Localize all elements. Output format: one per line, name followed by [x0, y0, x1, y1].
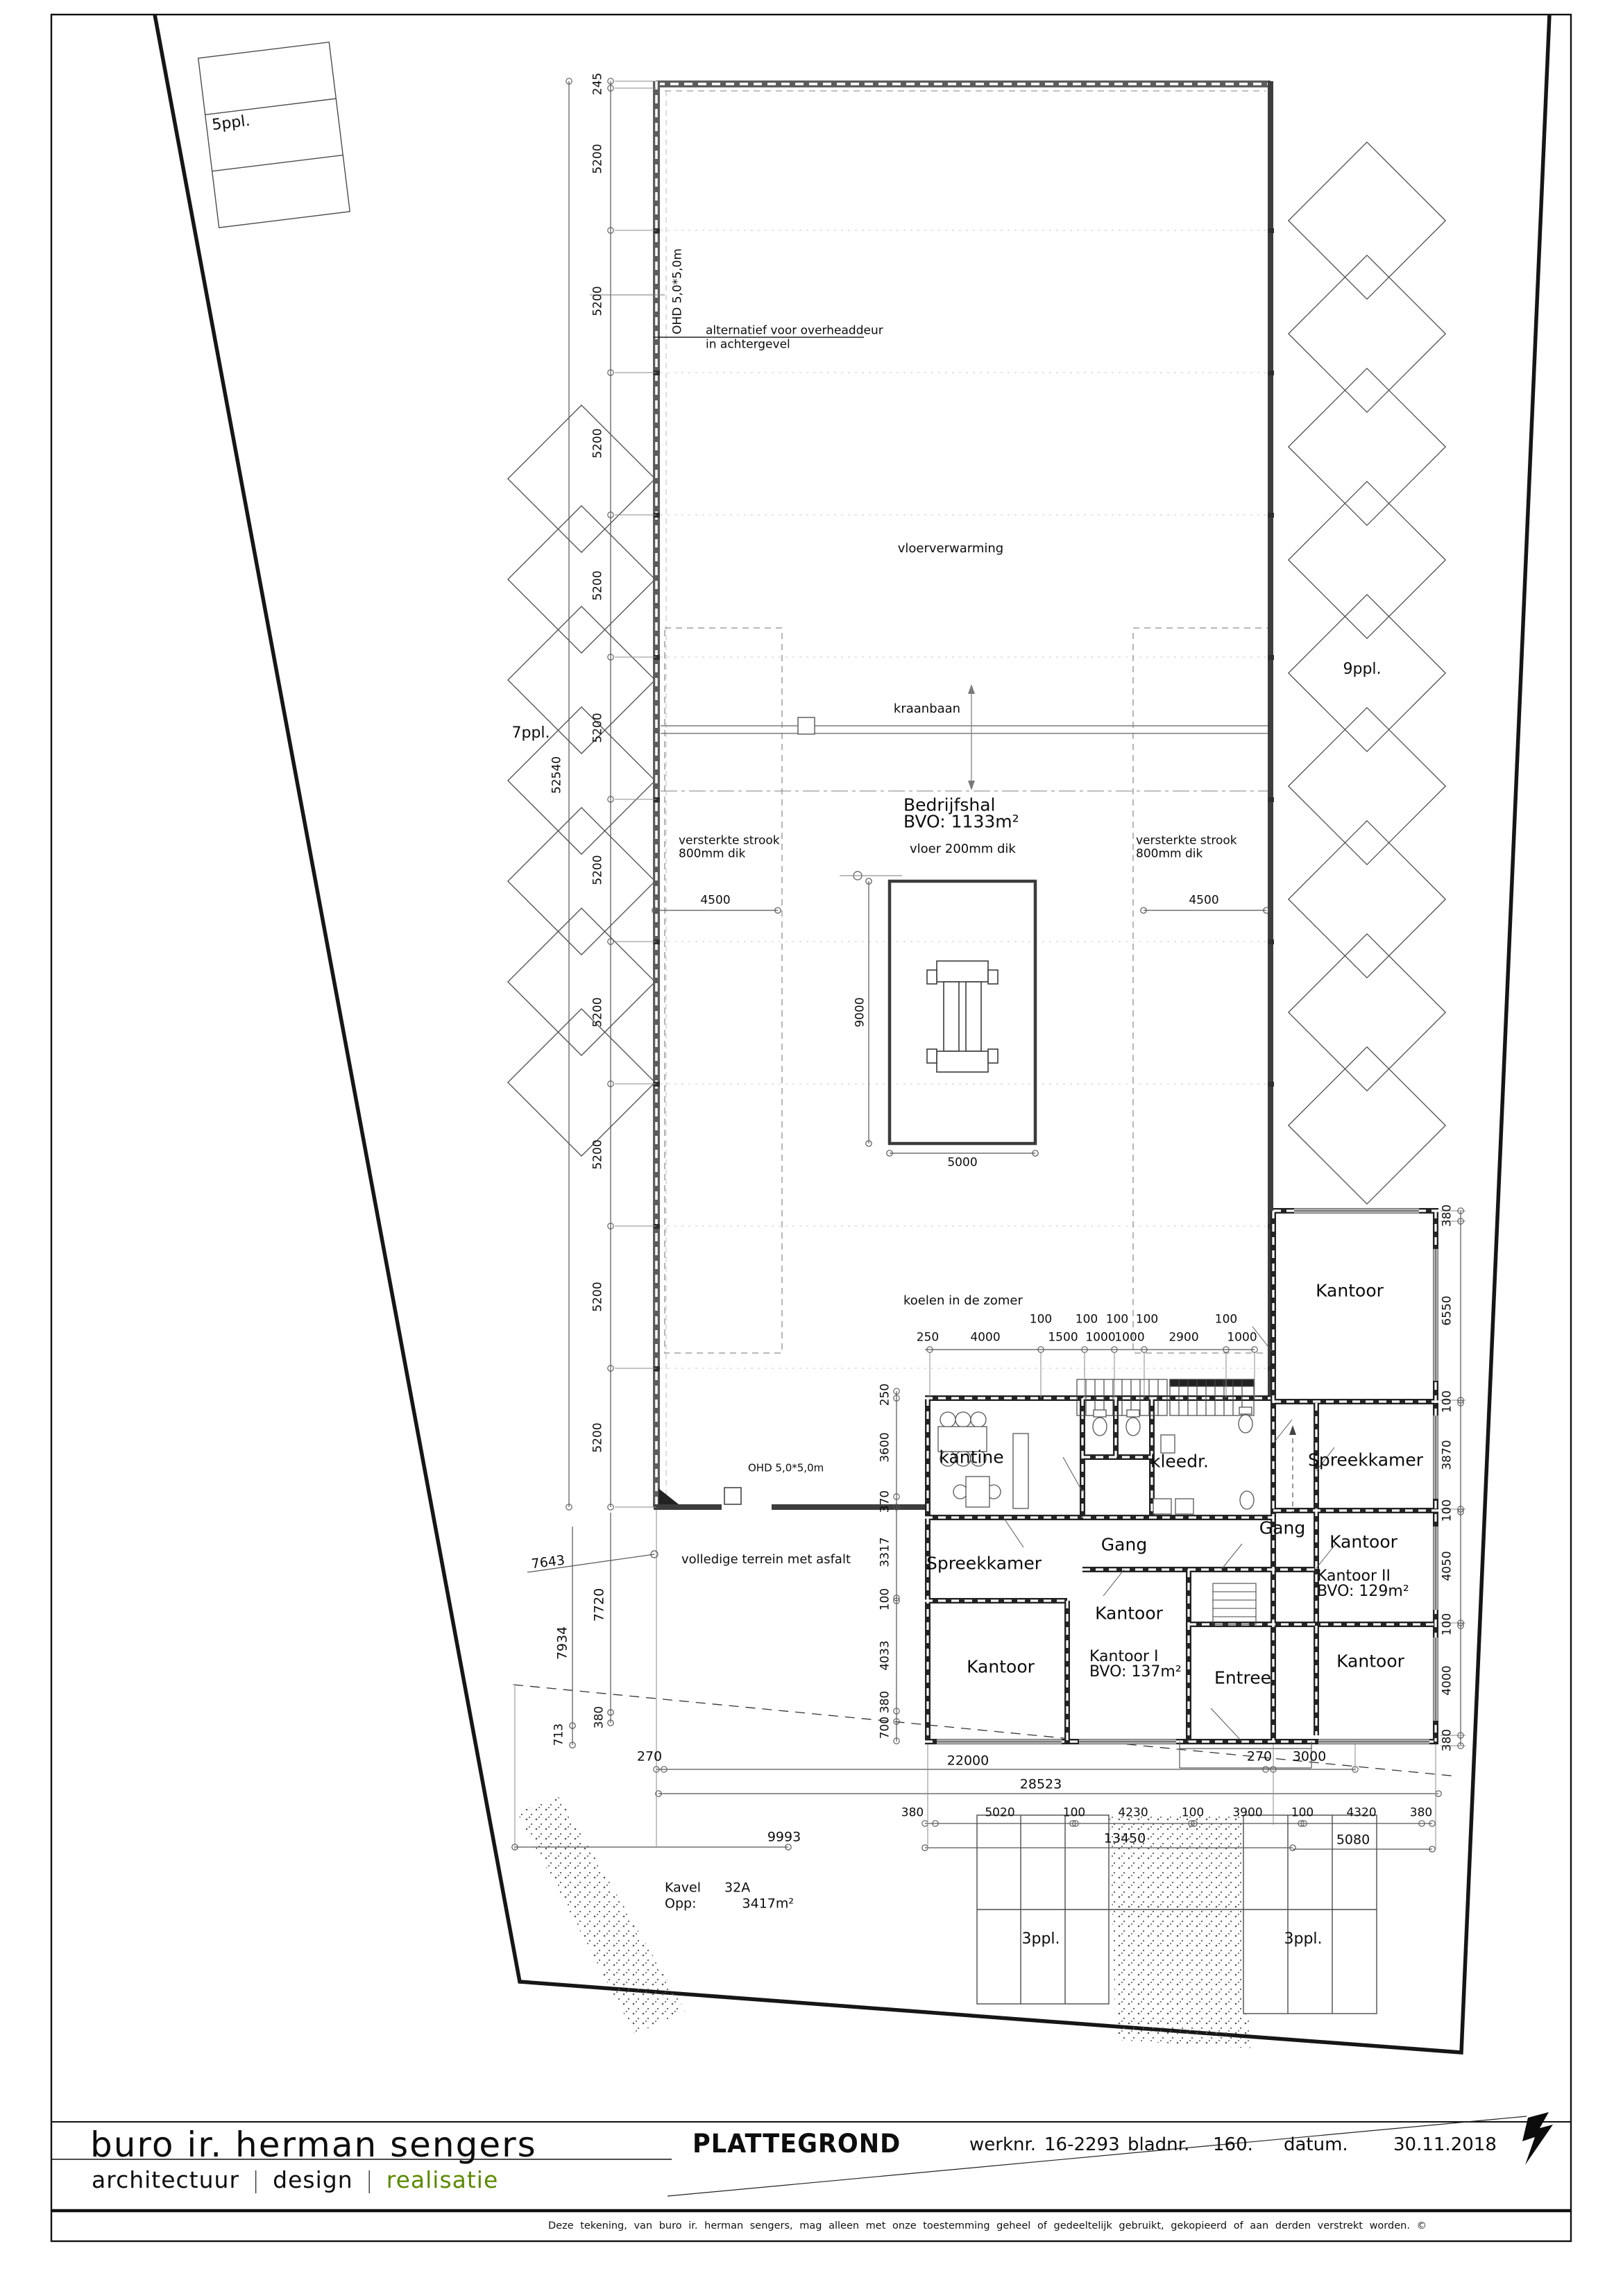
- dim-left-bay-1: 5200: [593, 144, 604, 173]
- dim-left-total: 52540: [552, 756, 563, 794]
- dim-chain-4: 100: [1182, 1808, 1204, 1819]
- dim-ol-0: 250: [880, 1384, 892, 1406]
- dim-chain-2: 100: [1063, 1808, 1085, 1819]
- dim-top-4000: 4000: [970, 1332, 1000, 1344]
- dim-ol-7: 700: [880, 1717, 892, 1739]
- dim-9993: 9993: [767, 1831, 801, 1844]
- dim-right-0: 380: [1442, 1205, 1454, 1227]
- dim-left-bay-3: 5200: [593, 428, 604, 458]
- dim-713: 713: [554, 1724, 566, 1746]
- room-label-kantoor-topright: Kantoor: [1316, 1282, 1384, 1300]
- dim-left-bay-2: 5200: [593, 286, 604, 316]
- parking-label-7ppl: 7ppl.: [511, 726, 550, 741]
- vloerverwarming-label: vloerverwarming: [898, 543, 1003, 555]
- dim-top-1000-c: 1000: [1227, 1332, 1257, 1344]
- parking-left-7ppl: [508, 405, 655, 1156]
- dim-right-8: 380: [1442, 1729, 1454, 1751]
- dim-5080: 5080: [1336, 1834, 1370, 1847]
- kavel-line1: Kavel 32A: [665, 1882, 750, 1895]
- room-label-kantoor-center: Kantoor: [1095, 1605, 1163, 1622]
- dim-3000: 3000: [1293, 1751, 1326, 1764]
- dim-22000: 22000: [947, 1755, 989, 1768]
- tagline-architectuur: architectuur: [92, 2166, 239, 2193]
- kraanbaan-label: kraanbaan: [894, 703, 960, 715]
- copyright-disclaimer: Deze tekening, van buro ir. herman senge…: [548, 2220, 1427, 2231]
- dim-left-bay-6: 5200: [593, 855, 604, 885]
- dim-ol-6: 380: [880, 1691, 892, 1713]
- kantoor1-area: BVO: 137m²: [1089, 1665, 1182, 1680]
- alternatief-line2: in achtergevel: [706, 339, 790, 351]
- dim-right-2: 100: [1442, 1391, 1454, 1413]
- ohd-door-label: OHD 5,0*5,0m: [748, 1463, 824, 1474]
- room-label-kantoor-lowright: Kantoor: [1336, 1653, 1404, 1670]
- kantoor2-area: BVO: 129m²: [1317, 1584, 1409, 1599]
- dim-5000: 5000: [947, 1157, 977, 1169]
- kantoor1-name: Kantoor I: [1089, 1649, 1159, 1665]
- room-label-gang-right: Gang: [1259, 1520, 1305, 1537]
- room-label-kleedr: kleedr.: [1150, 1453, 1209, 1470]
- tagline-realisatie: realisatie: [386, 2166, 499, 2193]
- parking-label-9ppl: 9ppl.: [1343, 662, 1381, 677]
- datum-value: 30.11.2018: [1393, 2134, 1497, 2155]
- dim-right-4: 100: [1442, 1499, 1454, 1522]
- dim-9000: 9000: [855, 997, 867, 1027]
- room-label-kantine: kantine: [939, 1449, 1003, 1466]
- opp-value: 3417m²: [742, 1896, 794, 1912]
- dim-top-100-d: 100: [1136, 1314, 1158, 1326]
- dim-top-1500: 1500: [1048, 1332, 1078, 1344]
- bedrijfshal-area: BVO: 1133m²: [903, 813, 1019, 831]
- dim-chain-6: 100: [1291, 1808, 1314, 1819]
- asfalt-label: volledige terrein met asfalt: [681, 1554, 851, 1566]
- dim-left-bay-5: 5200: [593, 713, 604, 742]
- dim-right-5: 4050: [1442, 1551, 1454, 1581]
- dim-right-6: 100: [1442, 1613, 1454, 1635]
- dim-4500-right: 4500: [1189, 895, 1218, 907]
- dim-left-bay-10: 5200: [593, 1422, 604, 1452]
- dim-right-7: 4000: [1442, 1665, 1454, 1695]
- bladnr-label: bladnr.: [1128, 2134, 1189, 2155]
- dim-ol-3: 3317: [880, 1537, 892, 1567]
- dim-right-3: 3870: [1442, 1440, 1454, 1470]
- parking-label-3ppl-a: 3ppl.: [1021, 1932, 1060, 1947]
- werknr-label: werknr.: [969, 2134, 1036, 2155]
- dim-13450: 13450: [1104, 1832, 1146, 1846]
- tagline-separator-2: |: [366, 2166, 374, 2193]
- dim-chain-7: 4320: [1346, 1808, 1376, 1819]
- tagline-design: design: [273, 2166, 352, 2193]
- room-label-gang: Gang: [1101, 1536, 1147, 1554]
- dim-ol-1: 3600: [880, 1432, 892, 1462]
- company-tagline: architectuur | design | realisatie: [92, 2166, 498, 2193]
- plan-linework: [0, 0, 1623, 2296]
- room-label-kantoor-midright: Kantoor: [1329, 1533, 1397, 1551]
- room-label-spreekkamer-right: Spreekkamer: [1308, 1452, 1423, 1469]
- versterkte-strook-left-1: versterkte strook: [679, 835, 780, 847]
- dim-7934: 7934: [556, 1626, 570, 1660]
- opp-label: Opp:: [665, 1896, 696, 1912]
- dim-ol-5: 4033: [880, 1640, 892, 1670]
- parking-label-3ppl-b: 3ppl.: [1284, 1932, 1322, 1947]
- dim-top-100-a: 100: [1030, 1314, 1052, 1326]
- werknr-value: 16-2293: [1044, 2134, 1120, 2155]
- dim-top-250: 250: [917, 1332, 939, 1344]
- dim-chain-1: 5020: [985, 1808, 1014, 1819]
- company-name: buro ir. herman sengers: [90, 2125, 537, 2165]
- dim-chain-8: 380: [1410, 1808, 1432, 1819]
- dim-28523: 28523: [1020, 1778, 1062, 1792]
- dim-top-100-c: 100: [1106, 1314, 1128, 1326]
- kraanbaan-rails: [661, 684, 1268, 790]
- datum-label: datum.: [1284, 2134, 1348, 2155]
- dim-4500-left: 4500: [700, 895, 730, 907]
- versterkte-strook-left-2: 800mm dik: [679, 849, 745, 860]
- dim-380-site: 380: [594, 1706, 606, 1728]
- dim-270-a: 270: [637, 1751, 662, 1764]
- versterkte-strook-right-1: versterkte strook: [1136, 835, 1237, 847]
- dim-left-245: 245: [593, 73, 604, 95]
- dim-left-bay-8: 5200: [593, 1139, 604, 1169]
- parking-block-5ppl: [198, 42, 350, 228]
- kavel-number: 32A: [724, 1880, 750, 1896]
- room-label-spreekkamer-left: Spreekkamer: [926, 1555, 1042, 1572]
- drawing-type: PLATTEGROND: [692, 2129, 901, 2159]
- koelen-label: koelen in de zomer: [903, 1295, 1023, 1307]
- bladnr-value: 160.: [1213, 2134, 1253, 2155]
- dim-top-100-e: 100: [1215, 1314, 1237, 1326]
- dim-ol-4: 100: [880, 1588, 892, 1610]
- alternatief-line1: alternatief voor overheaddeur: [706, 325, 883, 337]
- dim-chain-5: 3900: [1232, 1808, 1262, 1819]
- dim-ol-2: 370: [880, 1490, 892, 1513]
- dim-left-bay-9: 5200: [593, 1282, 604, 1311]
- versterkte-strook-right-2: 800mm dik: [1136, 849, 1203, 860]
- dim-chain-0: 380: [901, 1808, 924, 1819]
- dim-top-2900: 2900: [1169, 1332, 1198, 1344]
- dim-270-b: 270: [1247, 1751, 1272, 1764]
- dim-top-100-b: 100: [1076, 1314, 1098, 1326]
- dim-right-1: 6550: [1442, 1295, 1454, 1325]
- site-boundary: [155, 15, 1549, 2052]
- tagline-separator-1: |: [252, 2166, 260, 2193]
- kantoor2-name: Kantoor II: [1317, 1569, 1391, 1584]
- dim-7720: 7720: [593, 1588, 606, 1622]
- dim-chain-3: 4230: [1118, 1808, 1148, 1819]
- room-label-kantoor-botleft: Kantoor: [967, 1658, 1035, 1676]
- vloer-dik-label: vloer 200mm dik: [910, 843, 1016, 856]
- drawing-sheet: 245 5200 5200 5200 5200 5200 5200 5200 5…: [0, 0, 1623, 2296]
- dim-top-1000-a: 1000: [1085, 1332, 1115, 1344]
- dim-top-1000-b: 1000: [1114, 1332, 1144, 1344]
- dim-left-bay-4: 5200: [593, 570, 604, 600]
- kavel-label: Kavel: [665, 1880, 701, 1896]
- ohd-achtergevel-label: OHD 5,0*5,0m: [672, 248, 684, 334]
- room-label-entree: Entree: [1214, 1669, 1271, 1687]
- dim-left-bay-7: 5200: [593, 997, 604, 1027]
- kavel-line2: Opp: 3417m²: [665, 1898, 794, 1911]
